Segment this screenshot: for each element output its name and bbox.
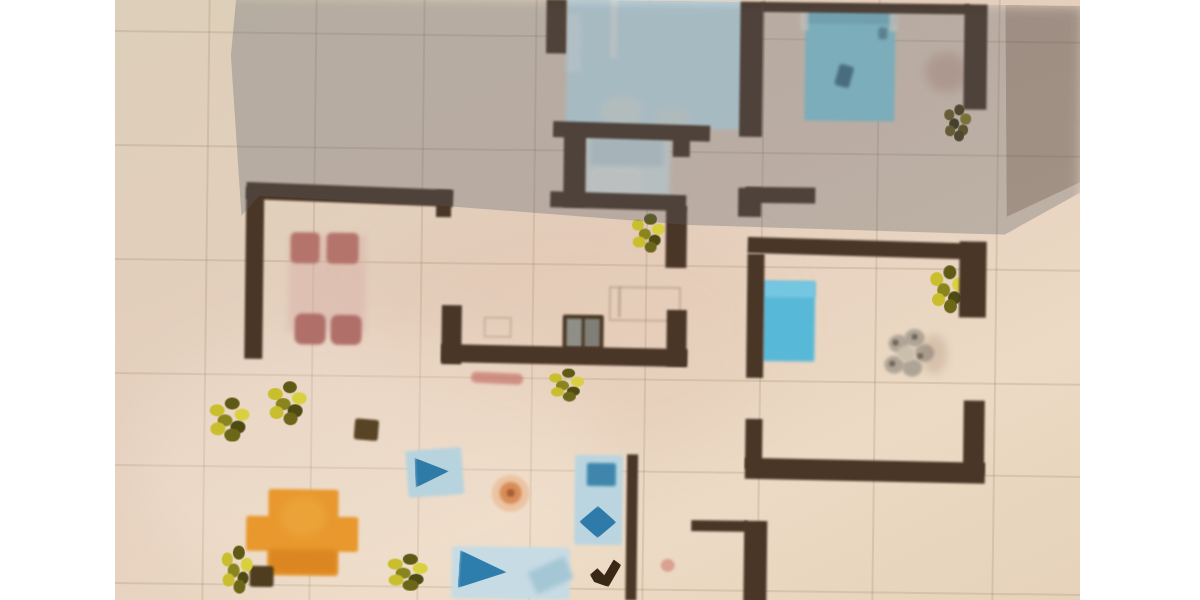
dark-box: [354, 418, 380, 441]
plant-leaf: [270, 406, 285, 419]
kitchen-counter-line: [618, 287, 621, 317]
wall-segment: [691, 520, 747, 532]
plant-leaf: [403, 580, 418, 591]
plant-leaf: [633, 236, 645, 248]
plant-leaf: [932, 293, 945, 307]
wall-segment: [666, 310, 687, 366]
decor-check-mark: [589, 556, 623, 588]
plant-leaf: [412, 563, 427, 574]
pouf-dot: [507, 489, 515, 497]
plant-leaf: [944, 299, 957, 313]
stove-burner-right: [584, 319, 599, 347]
potted-plant: [265, 380, 306, 422]
flower-rug-speck: [912, 334, 918, 340]
flower-rug-center: [897, 346, 915, 362]
plant-leaf: [225, 428, 240, 441]
flower-rug-speck: [889, 361, 895, 367]
wall-segment: [743, 521, 767, 600]
plant-leaf: [224, 397, 239, 410]
potted-plant: [384, 552, 426, 589]
plant-leaf: [943, 265, 956, 279]
plant-leaf: [234, 408, 249, 421]
kitchen-counter-outline: [484, 317, 512, 338]
screenshot: [0, 0, 1200, 600]
wall-segment: [746, 254, 765, 378]
potted-plant: [206, 396, 249, 439]
plant-leaf: [652, 223, 664, 235]
sofa-back-cushion: [587, 463, 616, 486]
letterbox-left: [0, 0, 115, 600]
wall-segment: [244, 187, 264, 359]
wall-segment: [625, 454, 638, 600]
dining-chair: [294, 313, 325, 344]
letterbox-right: [1080, 0, 1200, 600]
potted-plant: [219, 544, 252, 590]
photo: [115, 0, 1080, 600]
plant-leaf: [241, 558, 253, 572]
potted-plant: [547, 367, 583, 399]
stove-burner-left: [566, 319, 581, 347]
orange-table-highlight: [280, 496, 326, 537]
wall-segment: [745, 458, 985, 484]
plant-leaf: [389, 575, 404, 586]
wall-segment: [747, 237, 967, 260]
blue-bed-unit-pillow: [763, 281, 815, 298]
orange-table-shade: [269, 549, 337, 574]
floor-stain: [921, 334, 947, 374]
plant-leaf: [550, 387, 563, 397]
scene: [115, 0, 1080, 600]
plant-leaf: [292, 392, 307, 405]
plant-leaf: [233, 545, 245, 559]
plant-leaf: [571, 377, 584, 387]
dining-chair: [326, 233, 358, 264]
plant-leaf: [283, 412, 298, 425]
plant-leaf: [211, 422, 226, 435]
plant-leaf: [563, 392, 576, 402]
wall-segment: [959, 241, 987, 317]
flower-rug-speck: [892, 340, 898, 346]
dark-box: [249, 566, 273, 587]
dining-chair: [290, 232, 319, 263]
pink-dot: [661, 559, 675, 572]
dining-chair: [330, 315, 361, 345]
plant-leaf: [233, 579, 245, 593]
